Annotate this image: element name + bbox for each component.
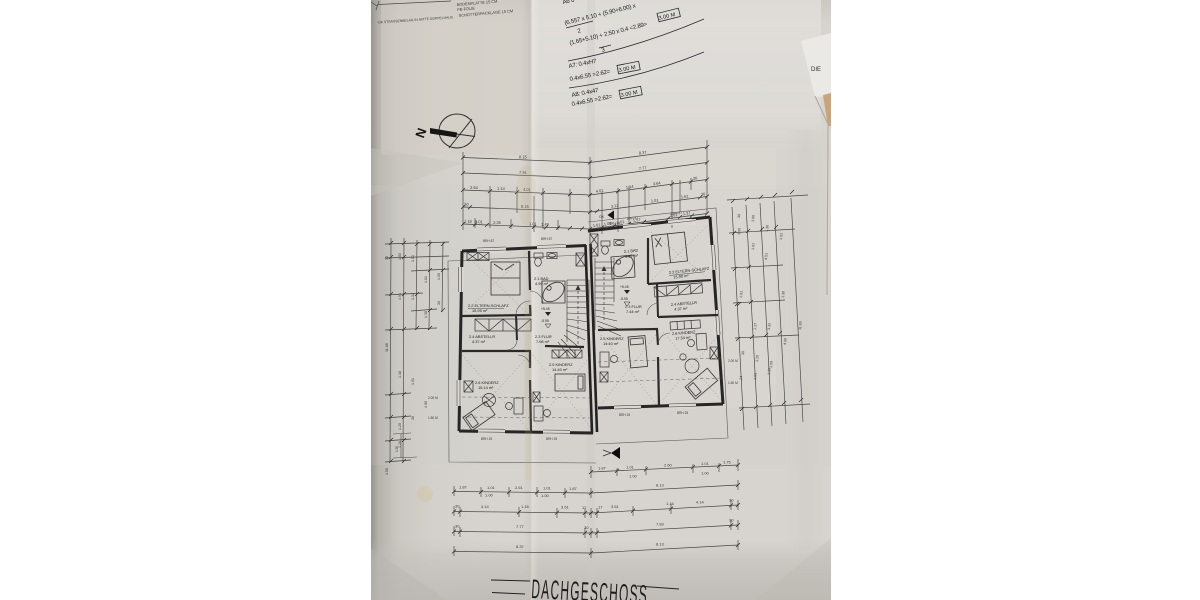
svg-text:14.40 m²: 14.40 m²	[552, 367, 568, 372]
svg-text:3.32: 3.32	[767, 323, 771, 330]
svg-text:24: 24	[739, 376, 743, 380]
svg-text:8.37: 8.37	[639, 149, 648, 155]
svg-text:1.32: 1.32	[411, 293, 415, 300]
svg-text:2.00 M: 2.00 M	[428, 396, 438, 400]
svg-text:OK: OK	[599, 215, 605, 219]
svg-text:3.12: 3.12	[611, 203, 620, 209]
svg-text:1.20: 1.20	[398, 423, 402, 430]
svg-text:+5.45: +5.45	[541, 307, 550, 311]
svg-text:2.61: 2.61	[515, 485, 524, 490]
svg-text:3.51: 3.51	[611, 504, 620, 509]
svg-text:8.13: 8.13	[656, 542, 665, 547]
svg-text:1.01: 1.01	[411, 255, 415, 262]
svg-text:30: 30	[437, 301, 441, 305]
svg-text:1.18: 1.18	[464, 219, 473, 224]
svg-text:1.01: 1.01	[543, 486, 552, 491]
svg-text:4.37 m²: 4.37 m²	[472, 339, 486, 344]
svg-text:30: 30	[741, 351, 745, 355]
svg-text:1.00: 1.00	[737, 228, 741, 235]
svg-text:1.38: 1.38	[424, 311, 428, 318]
svg-text:30: 30	[729, 518, 734, 523]
svg-text:2.00 M: 2.00 M	[728, 359, 738, 363]
svg-text:4.90: 4.90	[783, 338, 787, 345]
svg-text:4.01: 4.01	[596, 188, 605, 194]
svg-text:BRH 87: BRH 87	[483, 239, 494, 243]
svg-text:4.90: 4.90	[424, 401, 428, 408]
svg-text:7.77: 7.77	[516, 524, 525, 529]
svg-text:1.01: 1.01	[739, 291, 743, 298]
svg-text:30: 30	[737, 214, 741, 218]
svg-text:1.01: 1.01	[487, 485, 496, 490]
svg-text:BRH 25: BRH 25	[619, 413, 630, 417]
svg-text:3.36: 3.36	[493, 220, 502, 225]
svg-text:11.60: 11.60	[798, 321, 803, 330]
svg-text:1.17: 1.17	[753, 323, 757, 330]
svg-text:1.01: 1.01	[701, 461, 710, 466]
svg-text:3.64: 3.64	[653, 180, 662, 186]
svg-text:1.38: 1.38	[781, 291, 785, 298]
svg-text:1.61: 1.61	[681, 193, 690, 199]
svg-text:1.38: 1.38	[398, 371, 402, 378]
svg-text:1.50 M: 1.50 M	[428, 416, 438, 420]
svg-text:30: 30	[385, 256, 389, 260]
svg-text:1.50: 1.50	[769, 361, 773, 368]
svg-text:17: 17	[598, 505, 603, 510]
svg-text:7.83: 7.83	[656, 522, 665, 527]
svg-text:BRH 25: BRH 25	[677, 411, 688, 415]
svg-text:30: 30	[455, 504, 460, 509]
svg-text:1.00: 1.00	[541, 493, 550, 498]
svg-text:4.14: 4.14	[481, 504, 490, 509]
svg-text:1.16: 1.16	[666, 501, 675, 506]
svg-text:3.51: 3.51	[561, 505, 570, 510]
svg-text:1.01: 1.01	[651, 197, 660, 203]
svg-text:1.00: 1.00	[701, 471, 710, 476]
svg-text:+5.45: +5.45	[620, 285, 629, 289]
svg-text:4.51: 4.51	[764, 253, 768, 260]
svg-text:8.13: 8.13	[656, 483, 665, 488]
svg-text:-5.95: -5.95	[541, 319, 549, 323]
svg-text:15.14 m²: 15.14 m²	[478, 385, 494, 390]
svg-text:1.75: 1.75	[723, 460, 732, 465]
svg-text:17: 17	[582, 505, 587, 510]
svg-text:7.77: 7.77	[639, 165, 648, 171]
svg-text:1.00: 1.00	[485, 492, 494, 497]
svg-text:1.87: 1.87	[459, 485, 468, 490]
svg-text:30: 30	[411, 416, 415, 420]
svg-text:BRH 87: BRH 87	[609, 222, 620, 226]
svg-text:2.60: 2.60	[664, 463, 673, 468]
svg-text:1.87: 1.87	[598, 466, 607, 471]
svg-text:11.68: 11.68	[385, 343, 389, 352]
svg-text:1.01: 1.01	[626, 464, 635, 469]
svg-text:30: 30	[584, 525, 589, 530]
svg-text:1.01: 1.01	[779, 233, 783, 240]
svg-text:1.50: 1.50	[395, 446, 399, 452]
svg-text:3.64: 3.64	[470, 185, 479, 190]
svg-text:DIE: DIE	[811, 67, 821, 73]
svg-text:1.14: 1.14	[497, 186, 506, 191]
svg-text:1.00: 1.00	[751, 215, 755, 222]
svg-text:1.14: 1.14	[626, 184, 635, 190]
svg-text:1.50: 1.50	[385, 468, 389, 475]
svg-text:8.37: 8.37	[516, 544, 525, 549]
svg-text:1.50 M: 1.50 M	[728, 381, 738, 385]
svg-text:1.01: 1.01	[751, 243, 755, 250]
svg-text:7.44 m²: 7.44 m²	[626, 309, 640, 314]
svg-text:1.16: 1.16	[521, 504, 530, 509]
svg-text:4.14: 4.14	[696, 499, 705, 504]
svg-text:1.20: 1.20	[755, 355, 759, 362]
svg-text:1.01: 1.01	[411, 378, 415, 385]
svg-text:1.01: 1.01	[424, 276, 428, 283]
svg-text:30: 30	[455, 524, 460, 529]
svg-text:15.95 m²: 15.95 m²	[472, 308, 488, 313]
svg-text:1.00: 1.00	[398, 253, 402, 260]
svg-text:30: 30	[729, 498, 734, 503]
svg-text:1.01: 1.01	[753, 373, 757, 380]
svg-text:1.00: 1.00	[437, 273, 441, 280]
svg-text:4.51: 4.51	[398, 293, 402, 300]
svg-text:1.38: 1.38	[765, 225, 769, 232]
svg-text:8.15: 8.15	[519, 154, 528, 159]
svg-text:1.49: 1.49	[541, 222, 550, 227]
svg-text:9.01: 9.01	[475, 219, 484, 224]
svg-text:BRH 87: BRH 87	[541, 237, 552, 241]
svg-text:1.61: 1.61	[593, 222, 602, 228]
svg-text:1.87: 1.87	[569, 486, 578, 491]
svg-text:1.00: 1.00	[629, 473, 638, 478]
svg-text:-5.95: -5.95	[620, 297, 628, 301]
svg-text:7.98 m²: 7.98 m²	[536, 339, 550, 344]
svg-text:BRH 25: BRH 25	[546, 437, 557, 441]
svg-text:14.40 m²: 14.40 m²	[603, 341, 619, 346]
svg-text:BRH 25: BRH 25	[481, 437, 492, 441]
